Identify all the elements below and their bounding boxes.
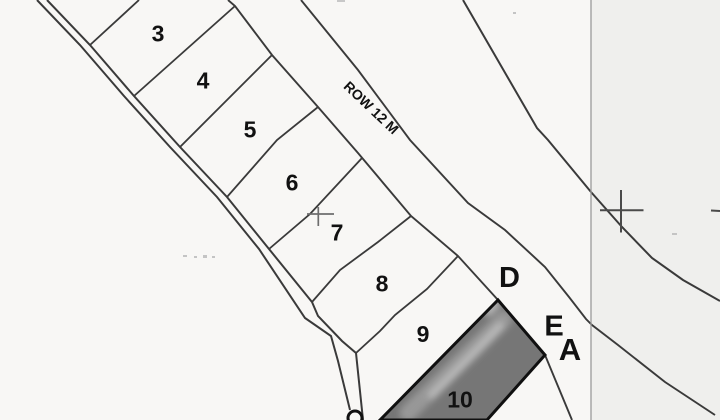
svg-text:8: 8: [376, 271, 389, 297]
svg-text:5: 5: [244, 117, 257, 143]
svg-text:9: 9: [417, 321, 430, 347]
svg-text:10: 10: [447, 387, 473, 413]
svg-text:A: A: [559, 332, 581, 367]
svg-text:D: D: [499, 262, 520, 294]
svg-text:3: 3: [152, 21, 165, 47]
svg-text:4: 4: [197, 68, 210, 94]
svg-text:7: 7: [331, 220, 344, 246]
svg-text:6: 6: [286, 170, 299, 196]
